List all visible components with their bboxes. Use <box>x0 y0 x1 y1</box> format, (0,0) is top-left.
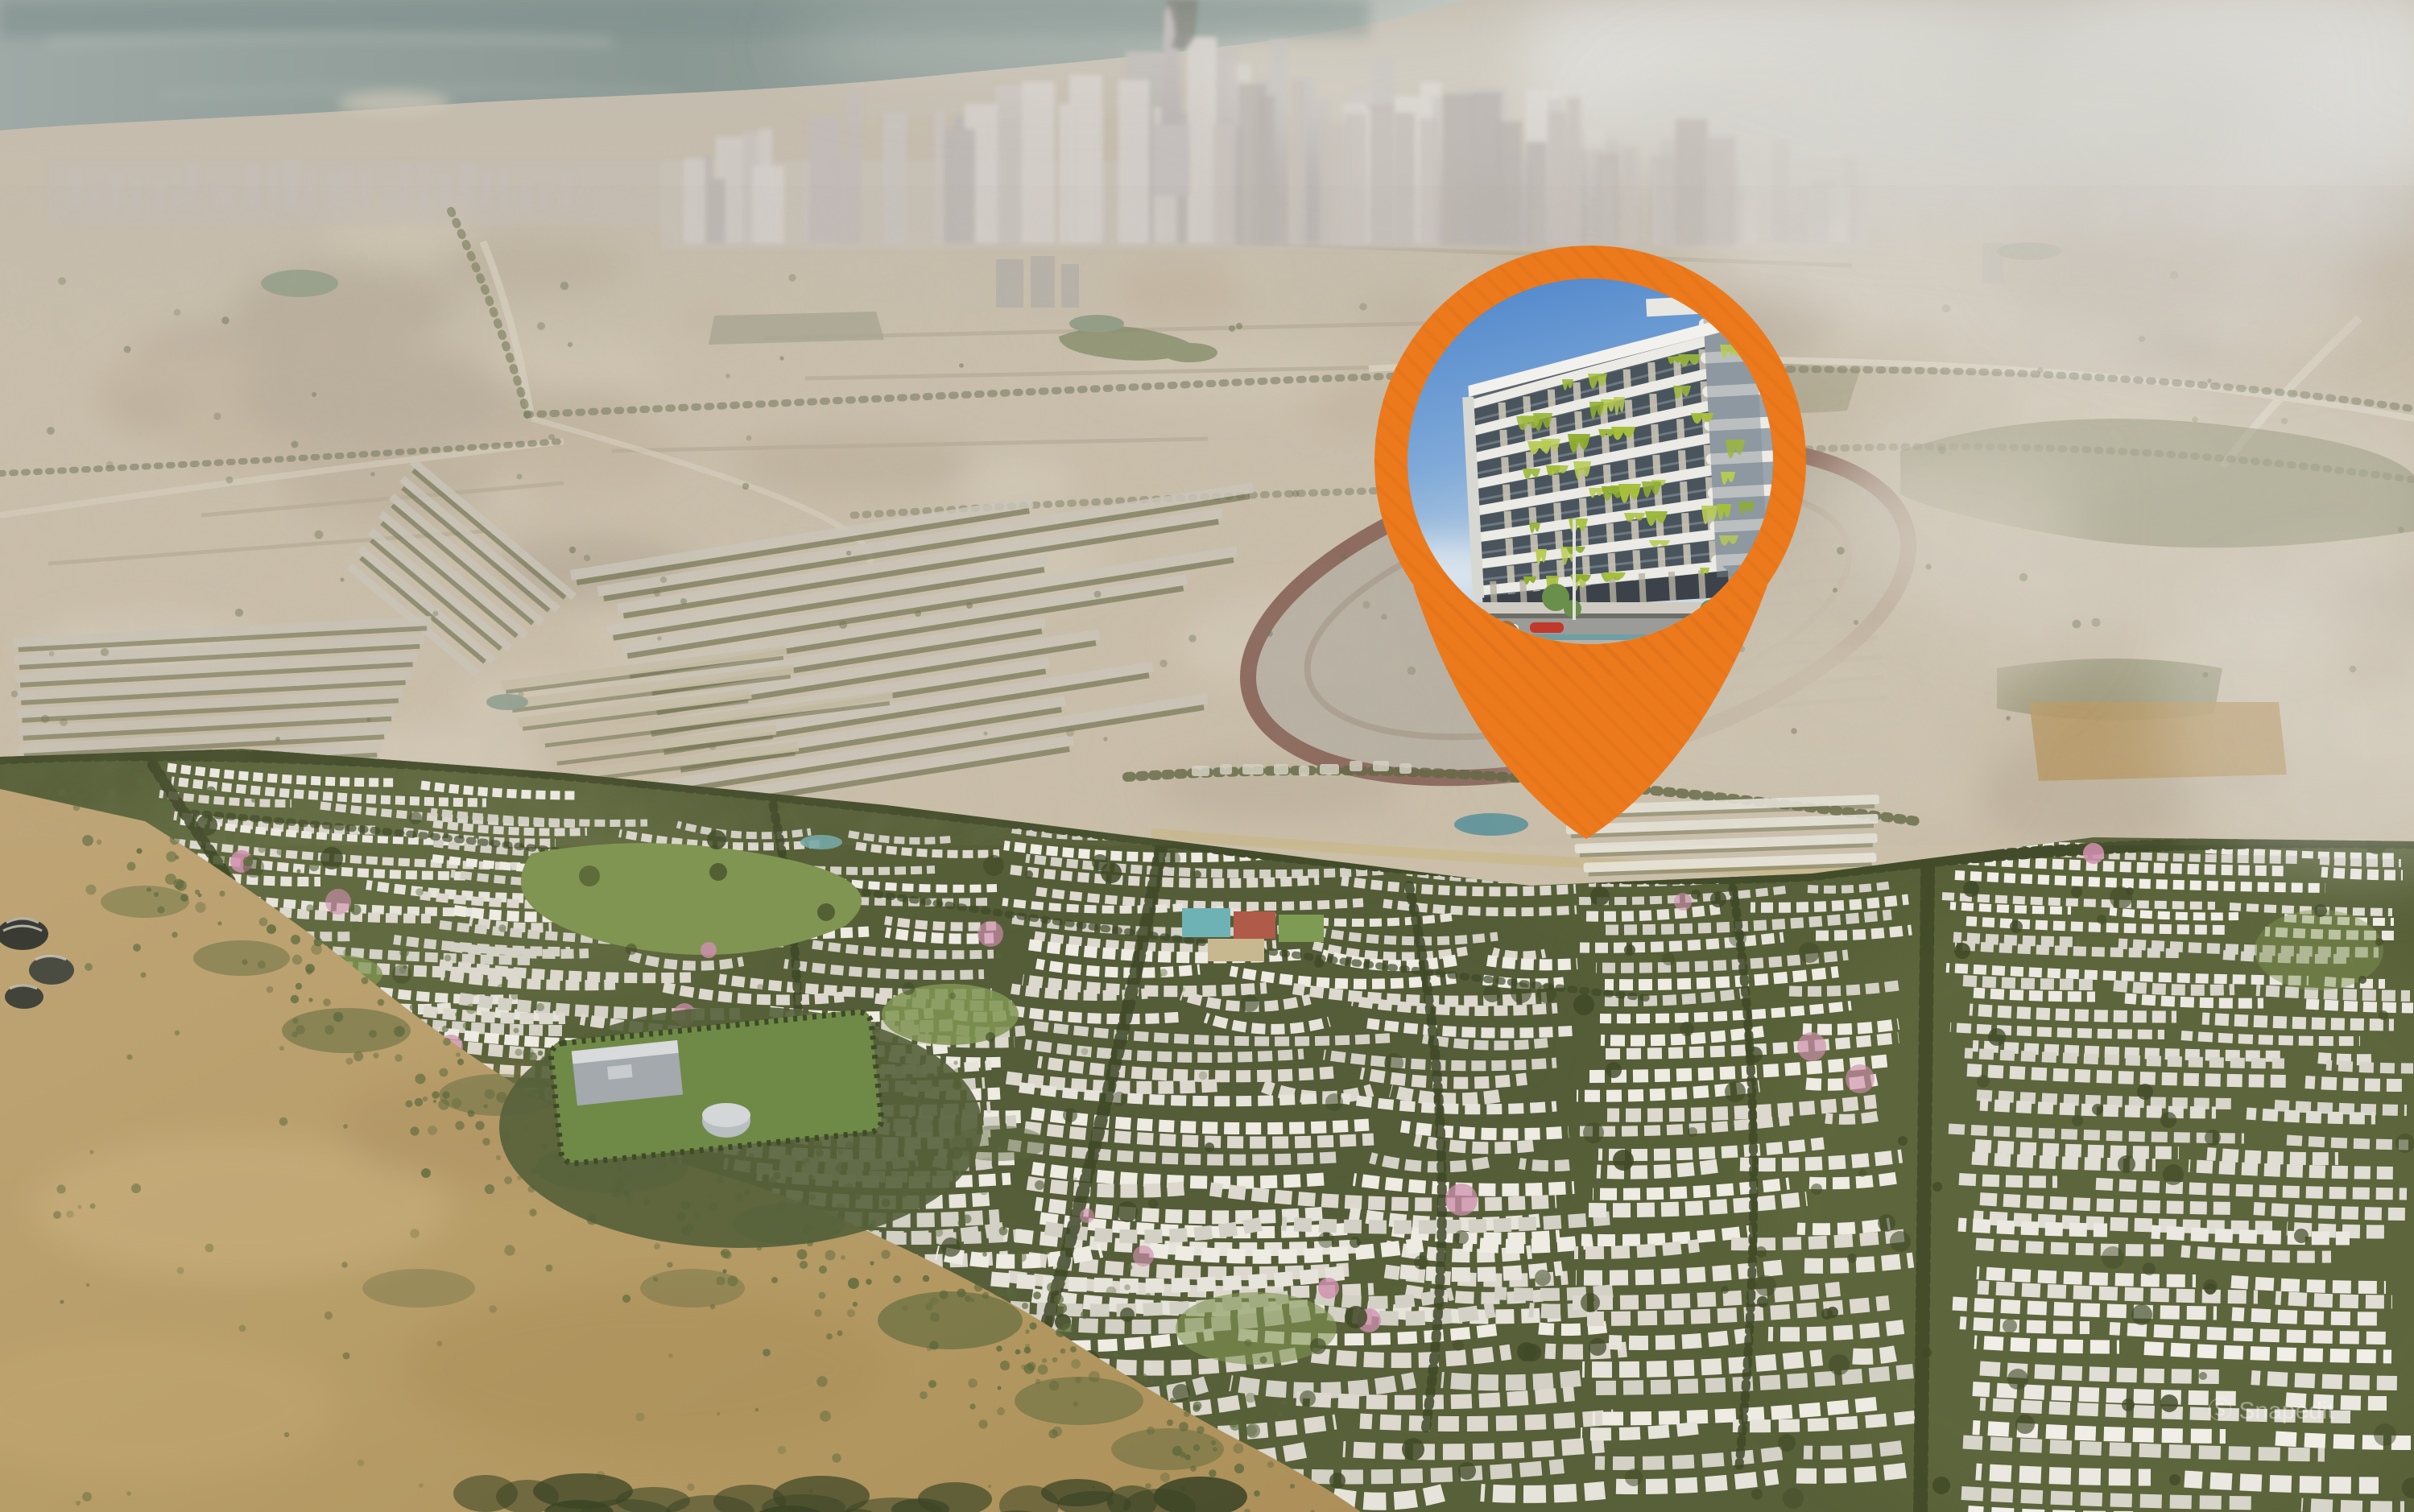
svg-text:Ⓢ Snapedit: Ⓢ Snapedit <box>2208 1398 2334 1424</box>
